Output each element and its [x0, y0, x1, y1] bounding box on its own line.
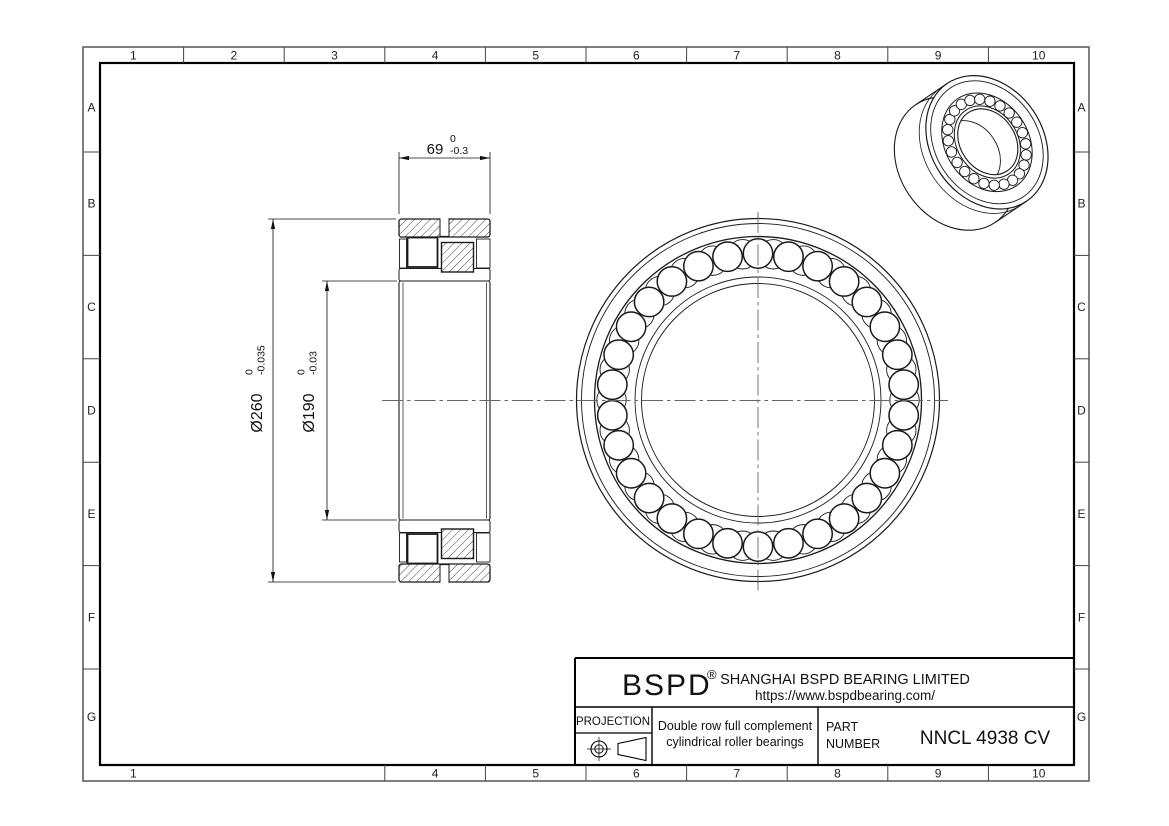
- bore-diameter-value: Ø190: [301, 393, 318, 432]
- grid-row-label-left: A: [87, 101, 95, 115]
- part-label-line1: PART: [826, 720, 859, 734]
- grid-row-label-left: B: [87, 197, 95, 211]
- projection-symbol: [587, 737, 646, 761]
- projection-symbol-frustum-icon: [618, 738, 646, 761]
- bearing-roller-front: [883, 431, 912, 460]
- bearing-roller-front: [883, 340, 912, 369]
- grid-column-label-top: 9: [935, 49, 942, 63]
- grid-row-label-left: F: [88, 610, 95, 624]
- grid-column-label-bottom: 8: [834, 767, 841, 781]
- grid-row-label-left: D: [87, 404, 96, 418]
- grid-column-label-top: 1: [130, 49, 137, 63]
- width-tol-lower: -0.3: [450, 145, 468, 157]
- title-block-texts: BSPD ® SHANGHAI BSPD BEARING LIMITED htt…: [576, 667, 1051, 751]
- bearing-roller-front: [870, 459, 899, 488]
- grid-row-label-right: E: [1077, 507, 1085, 521]
- roller-top-left: [408, 238, 438, 268]
- bearing-roller-front: [616, 459, 645, 488]
- bearing-roller-front: [889, 370, 918, 399]
- grid-column-label-bottom: 4: [432, 767, 439, 781]
- grid-column-label-top: 4: [432, 49, 439, 63]
- grid-row-label-right: A: [1077, 101, 1085, 115]
- projection-label: PROJECTION: [576, 716, 650, 728]
- grid-row-label-right: F: [1078, 610, 1085, 624]
- grid-column-label-top: 7: [734, 49, 741, 63]
- outer-diameter-value: Ø260: [249, 393, 266, 432]
- technical-drawing-canvas: 12345678910145678910AABBCCDDEEFFGG: [0, 0, 1169, 826]
- grid-column-label-top: 5: [532, 49, 539, 63]
- product-description-line2: cylindrical roller bearings: [666, 735, 804, 749]
- company-website: https://www.bspdbearing.com/: [755, 688, 935, 703]
- grid-column-label-top: 3: [331, 49, 338, 63]
- bearing-roller-front: [889, 401, 918, 430]
- brand-logo-text: BSPD: [622, 669, 712, 702]
- bore-section: [399, 281, 490, 520]
- bearing-roller-front: [634, 287, 663, 316]
- outer-diameter-tol-lower: -0.035: [256, 345, 268, 375]
- bearing-roller-front: [852, 483, 881, 512]
- width-dimension: 69 0 -0.3: [427, 133, 469, 158]
- bearing-roller-front: [657, 504, 686, 533]
- width-value: 69: [427, 141, 444, 158]
- grid-column-label-top: 10: [1032, 49, 1046, 63]
- bearing-roller-front: [774, 529, 803, 558]
- bearing-roller-front: [852, 287, 881, 316]
- grid-row-label-left: G: [87, 710, 96, 724]
- company-name: SHANGHAI BSPD BEARING LIMITED: [720, 672, 970, 688]
- grid-column-label-top: 2: [231, 49, 238, 63]
- bearing-roller-front: [829, 267, 858, 296]
- grid-column-label-bottom: 10: [1032, 767, 1046, 781]
- bearing-roller-front: [598, 370, 627, 399]
- bearing-isometric-view: [869, 52, 1073, 254]
- bearing-roller-front: [604, 340, 633, 369]
- part-label-line2: NUMBER: [826, 737, 880, 751]
- outer-diameter-tol-upper: 0: [244, 369, 256, 375]
- grid-column-label-bottom: 9: [935, 767, 942, 781]
- bearing-roller-front: [803, 251, 832, 280]
- grid-row-label-right: C: [1077, 300, 1086, 314]
- bearing-roller-front: [684, 519, 713, 548]
- bearing-section-view: [399, 218, 490, 584]
- grid-row-label-right: B: [1077, 197, 1085, 211]
- grid-column-label-bottom: 5: [532, 767, 539, 781]
- inner-ring-lip-top-right: [477, 239, 491, 268]
- grid-row-label-right: G: [1077, 710, 1086, 724]
- grid-column-label-top: 8: [834, 49, 841, 63]
- grid-column-label-bottom: 7: [734, 767, 741, 781]
- bearing-roller-front: [604, 431, 633, 460]
- roller-bottom-right-section: [442, 529, 474, 559]
- roller-bottom-left: [408, 534, 438, 564]
- bearing-roller-front: [657, 267, 686, 296]
- bearing-roller-front: [713, 529, 742, 558]
- grid-row-label-right: D: [1077, 404, 1086, 418]
- outer-diameter-dimension: Ø260 0 -0.035: [244, 345, 268, 433]
- inner-ring-lip-bottom-right: [477, 533, 491, 562]
- part-number-value: NNCL 4938 CV: [920, 728, 1051, 749]
- bore-diameter-tol-upper: 0: [296, 369, 308, 375]
- bearing-roller-front: [870, 312, 899, 341]
- bearing-roller-front: [598, 401, 627, 430]
- drawing-sheet: 12345678910145678910AABBCCDDEEFFGG: [0, 0, 1169, 826]
- bearing-roller-front: [634, 483, 663, 512]
- product-description-line1: Double row full complement: [658, 719, 813, 733]
- roller-top-right-section: [442, 243, 474, 273]
- bearing-roller-front: [684, 251, 713, 280]
- inner-ring-lip-top-left: [400, 239, 407, 268]
- registered-trademark: ®: [707, 667, 717, 682]
- grid-column-label-bottom: 1: [130, 767, 137, 781]
- inner-ring-lip-bottom-left: [400, 533, 407, 562]
- outer-ring-bottom-slot: [440, 565, 449, 584]
- bore-diameter-tol-lower: -0.03: [308, 351, 320, 375]
- grid-row-label-left: E: [87, 507, 95, 521]
- outer-ring-top-slot: [440, 218, 449, 237]
- bearing-roller-front: [616, 312, 645, 341]
- bore-diameter-dimension: Ø190 0 -0.03: [296, 351, 320, 433]
- bearing-roller-front: [774, 242, 803, 271]
- grid-column-label-bottom: 6: [633, 767, 640, 781]
- width-tol-upper: 0: [450, 133, 456, 145]
- grid-column-label-top: 6: [633, 49, 640, 63]
- bearing-roller-front: [713, 242, 742, 271]
- grid-row-label-left: C: [87, 300, 96, 314]
- bearing-roller-front: [803, 519, 832, 548]
- bearing-roller-front: [829, 504, 858, 533]
